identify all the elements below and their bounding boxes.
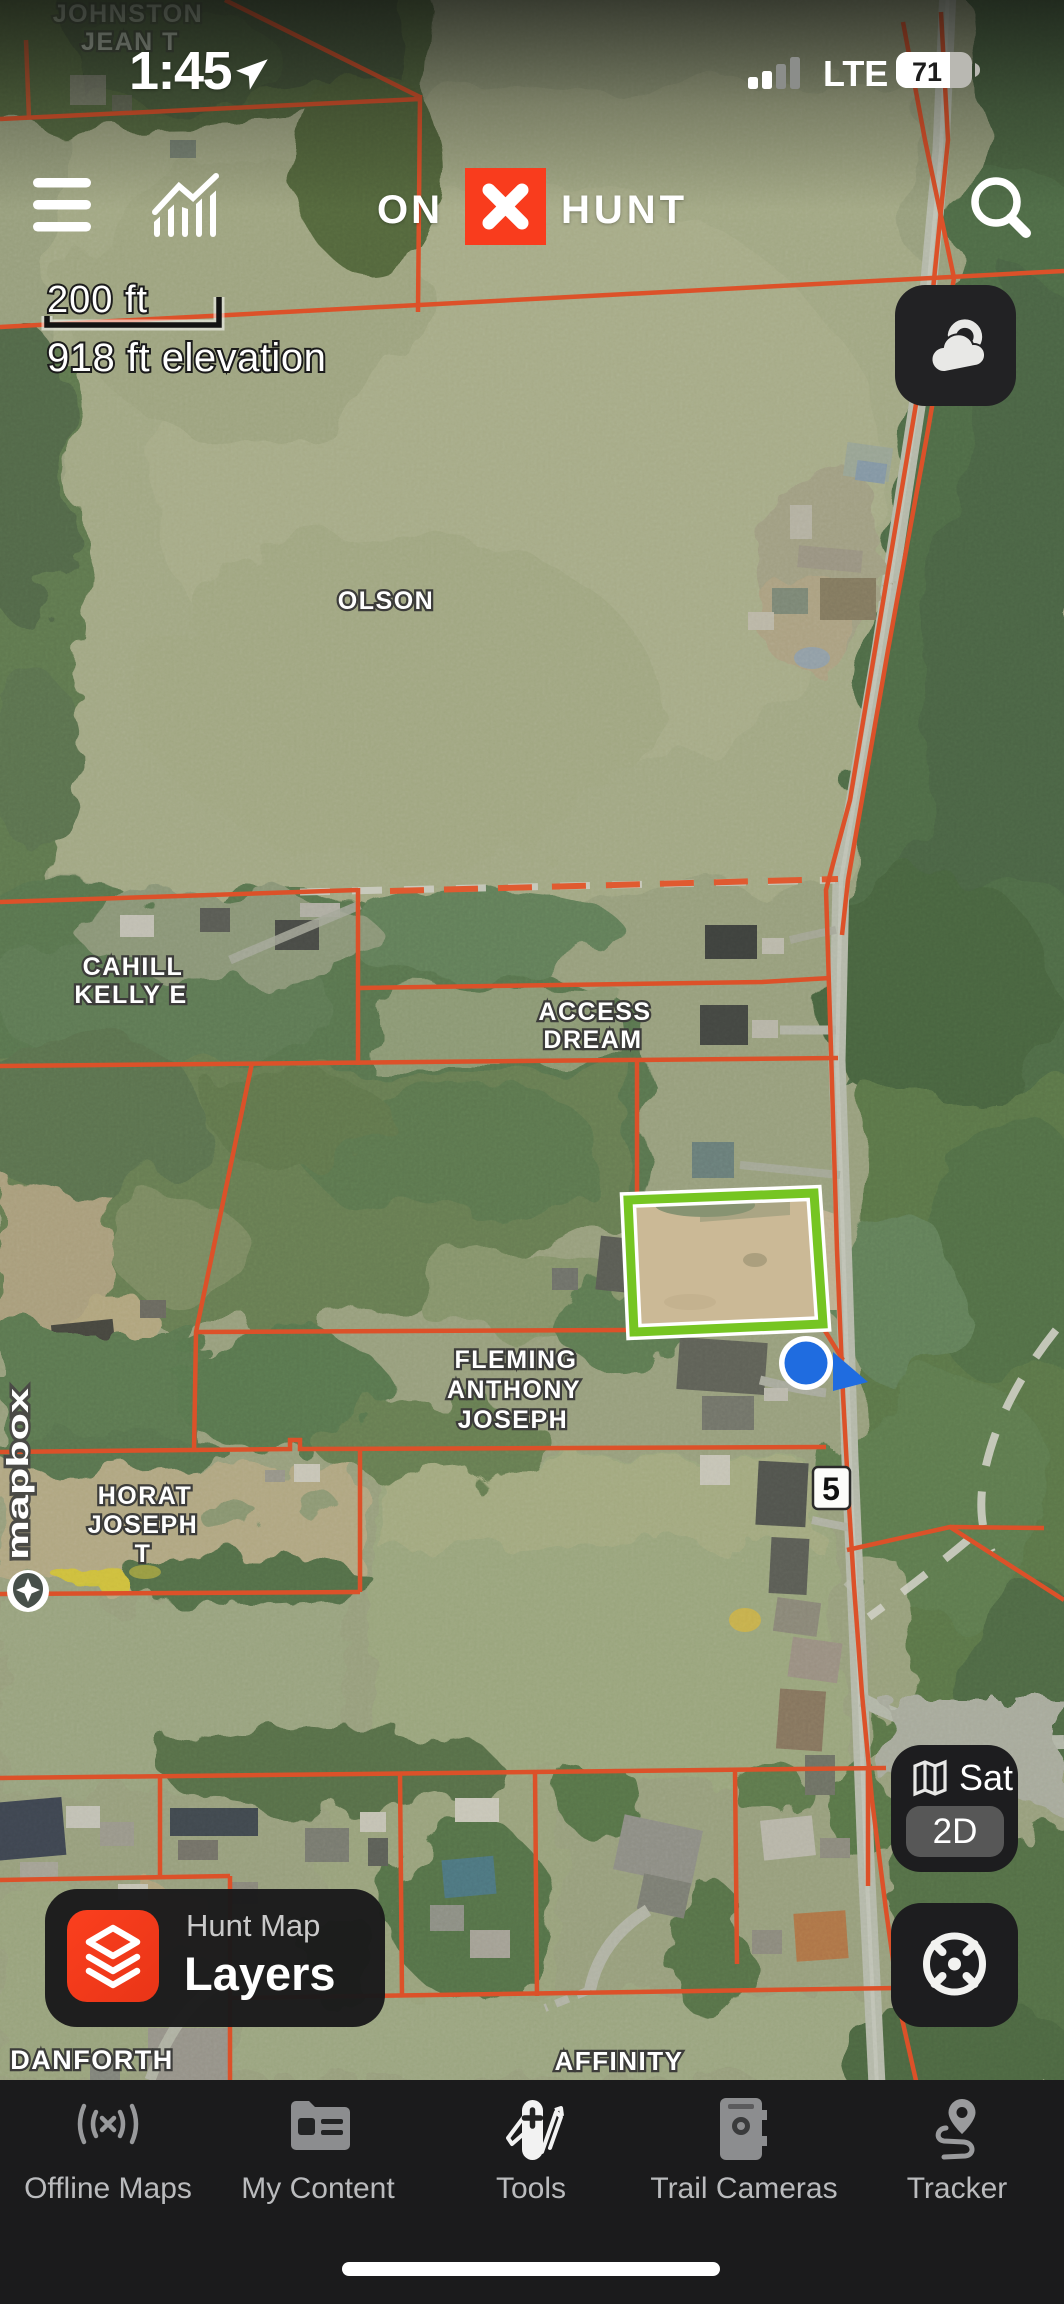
svg-text:71: 71 <box>912 57 942 87</box>
svg-text:5: 5 <box>822 1471 840 1507</box>
svg-text:DREAM: DREAM <box>543 1026 642 1054</box>
svg-text:KELLY E: KELLY E <box>74 981 187 1009</box>
svg-text:T: T <box>135 1540 152 1568</box>
svg-text:OLSON: OLSON <box>338 587 434 615</box>
svg-text:JOSEPH: JOSEPH <box>88 1511 198 1539</box>
svg-text:CAHILL: CAHILL <box>83 953 184 981</box>
svg-text:FLEMING: FLEMING <box>455 1346 578 1374</box>
svg-text:918 ft elevation: 918 ft elevation <box>47 336 326 380</box>
svg-text:JOSEPH: JOSEPH <box>458 1406 568 1434</box>
svg-text:AFFINITY: AFFINITY <box>555 2046 684 2076</box>
svg-text:HORAT: HORAT <box>98 1482 193 1510</box>
svg-text:200 ft: 200 ft <box>47 279 148 321</box>
svg-text:ANTHONY: ANTHONY <box>447 1376 581 1404</box>
svg-text:DANFORTH: DANFORTH <box>10 2045 173 2075</box>
svg-text:ACCESS: ACCESS <box>538 998 651 1026</box>
svg-text:mapbox: mapbox <box>0 1387 35 1560</box>
